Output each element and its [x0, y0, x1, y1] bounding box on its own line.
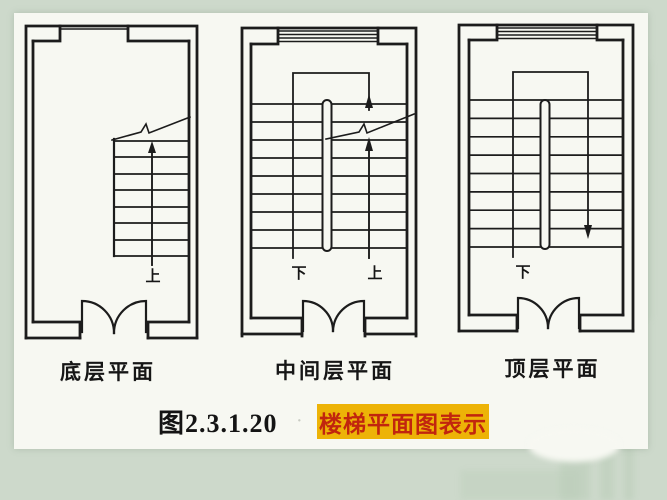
middle-floor-plan	[242, 28, 416, 336]
figure-number: 图2.3.1.20	[158, 403, 278, 440]
slide: 上 下 上 下 底层平面 中间层平面 顶层平面 图2.3.1.20 · 楼梯平面…	[0, 0, 667, 500]
top-floor-plan	[459, 25, 633, 331]
ground-up-label: 上	[141, 265, 165, 286]
double-door-swing-icon	[82, 301, 146, 333]
middle-down-label: 下	[287, 262, 311, 283]
middle-up-label: 上	[363, 262, 387, 283]
ground-floor-plan	[26, 26, 197, 338]
break-line-icon	[112, 117, 190, 140]
ground-floor-caption: 底层平面	[38, 356, 178, 386]
double-door-swing-icon	[518, 298, 579, 328]
scan-artifact: ·	[296, 410, 303, 433]
break-line-icon	[326, 114, 414, 139]
middle-floor-caption: 中间层平面	[253, 355, 417, 385]
top-floor-caption: 顶层平面	[480, 353, 625, 383]
double-door-swing-icon	[303, 301, 364, 331]
handrail-symbol	[323, 100, 332, 251]
up-direction-arrow	[148, 141, 156, 265]
up-direction-arrow	[365, 137, 373, 258]
top-down-label: 下	[511, 261, 535, 282]
highlighted-title: 楼梯平面图表示	[317, 404, 489, 439]
window-symbol	[497, 28, 597, 39]
handrail-symbol	[541, 100, 550, 249]
wall-outline	[26, 26, 197, 338]
window-symbol	[278, 31, 378, 42]
